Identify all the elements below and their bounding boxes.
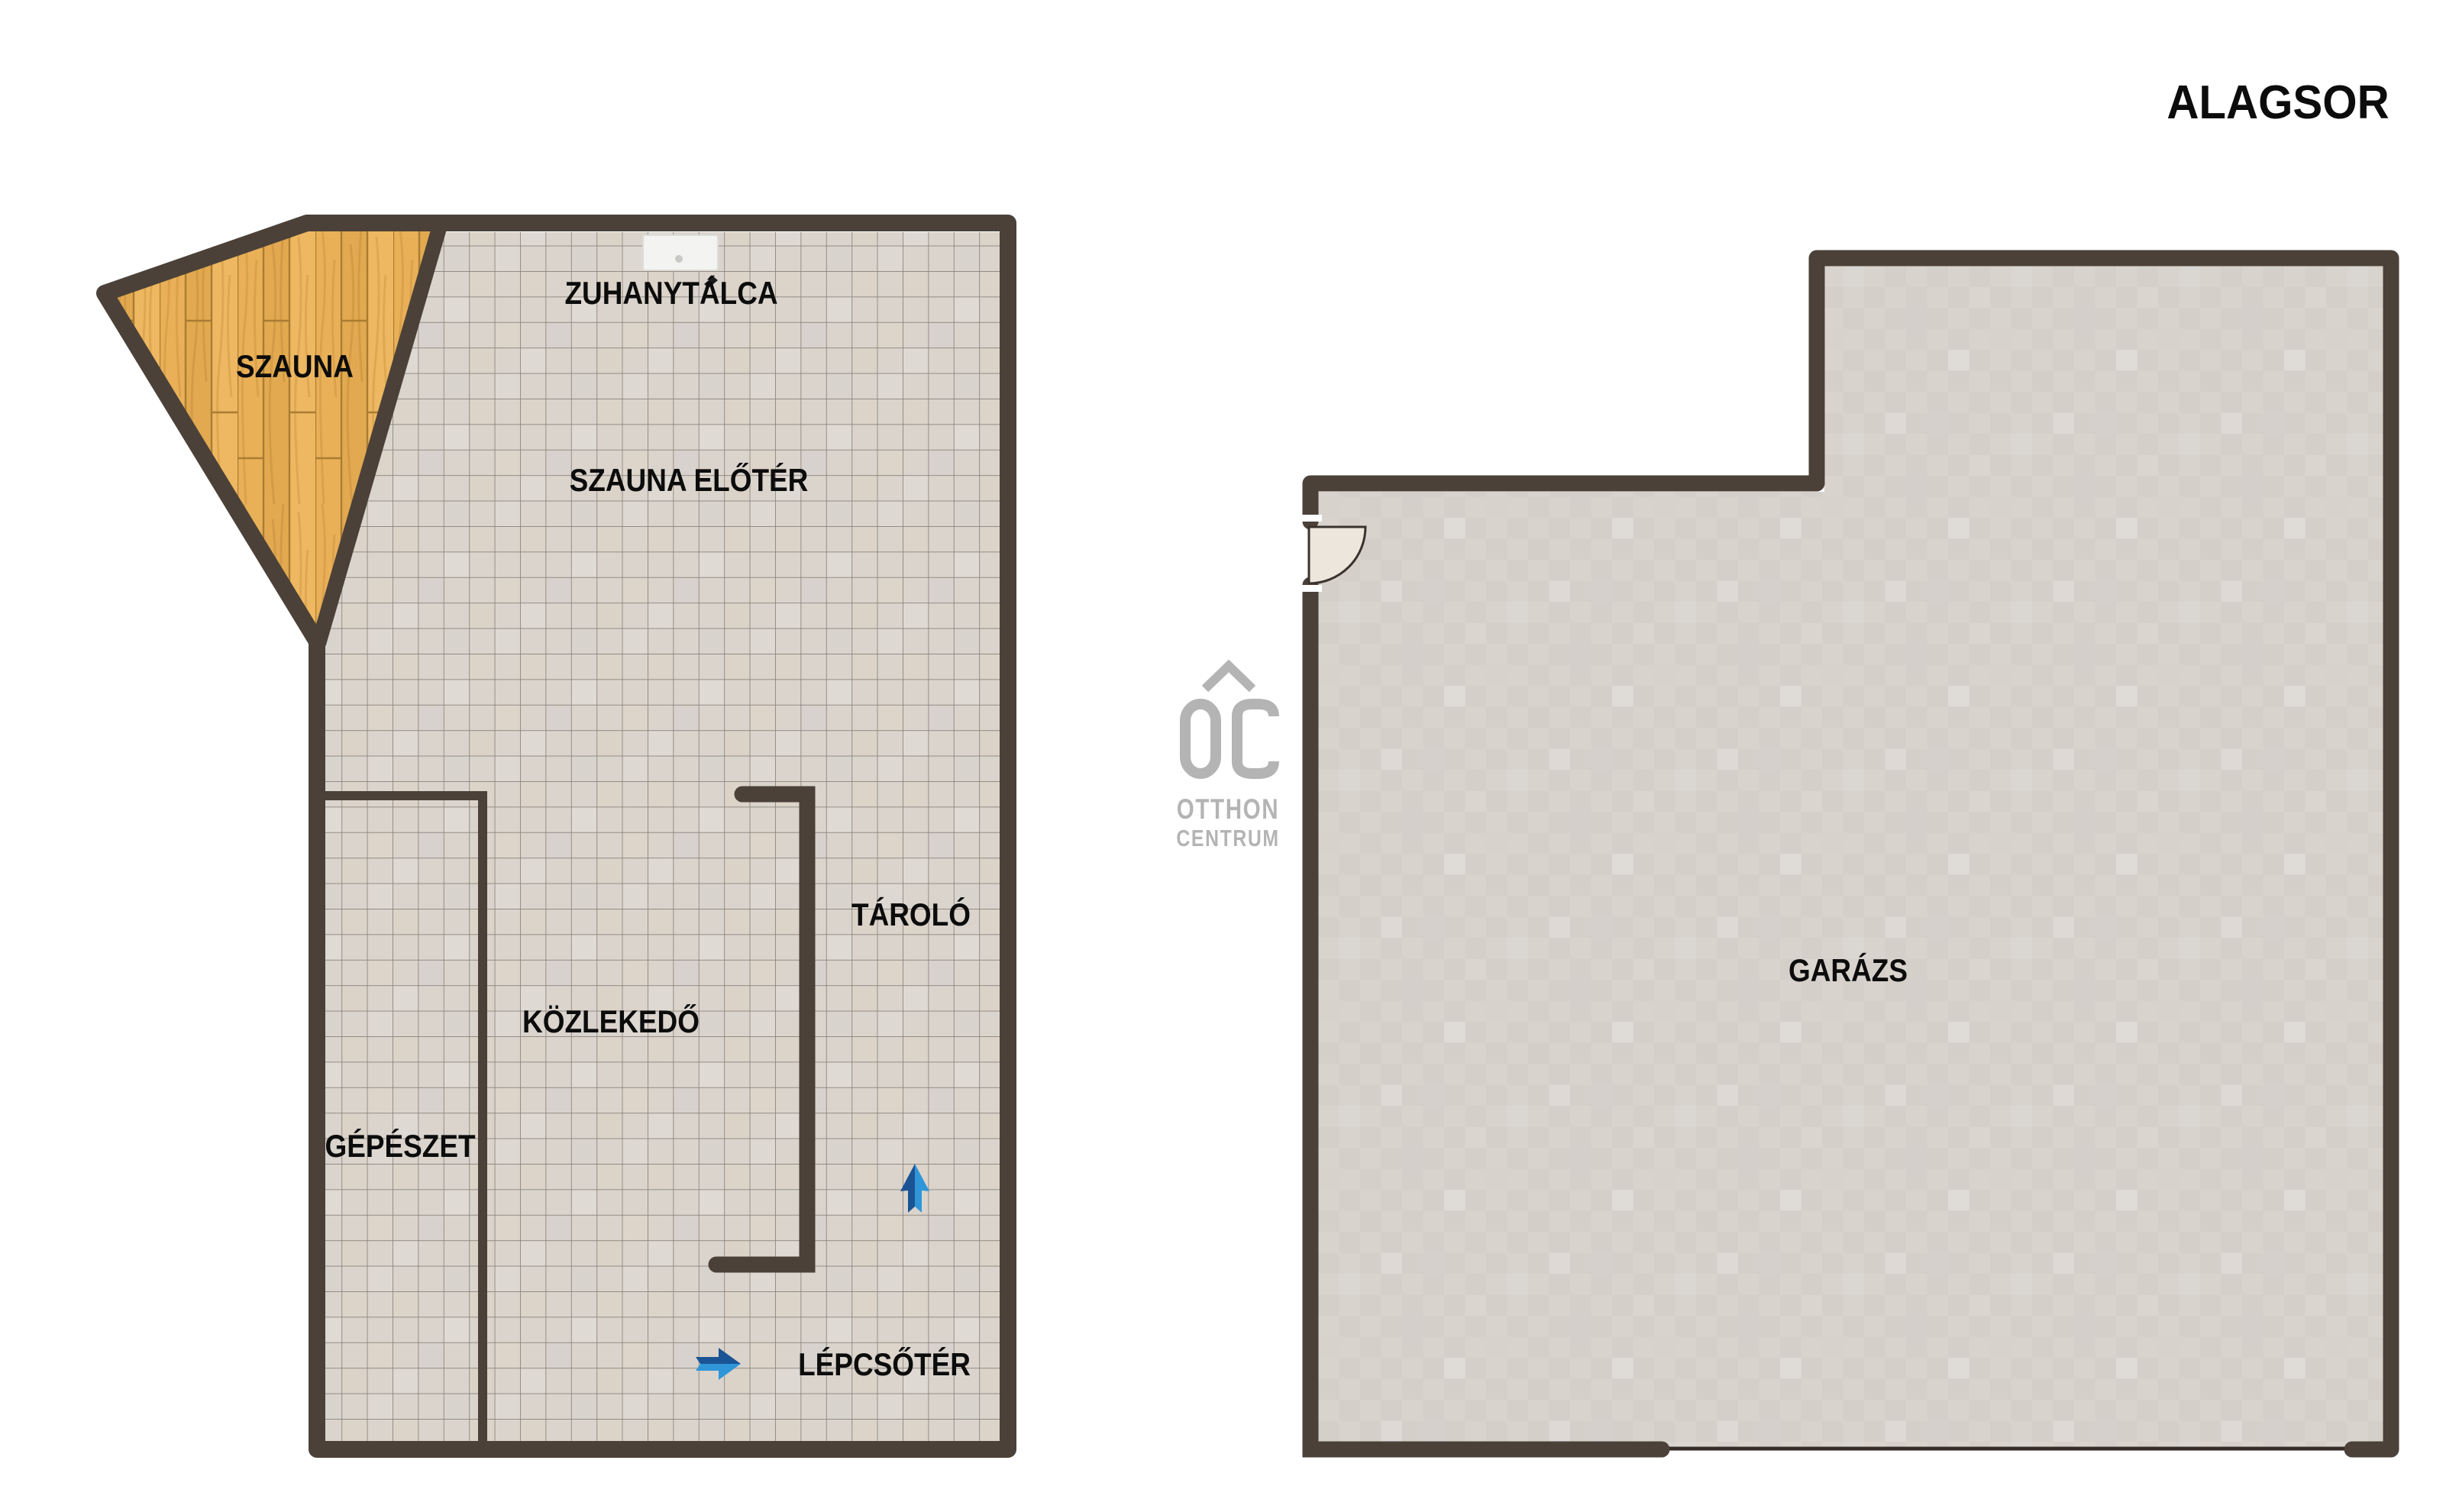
svg-text:KÖZLEKEDŐ: KÖZLEKEDŐ [522, 1004, 700, 1040]
svg-text:SZAUNA: SZAUNA [236, 349, 354, 385]
svg-text:ZUHANYTÁLCA: ZUHANYTÁLCA [564, 276, 777, 312]
svg-text:SZAUNA ELŐTÉR: SZAUNA ELŐTÉR [570, 463, 809, 499]
svg-text:LÉPCSŐTÉR: LÉPCSŐTÉR [798, 1347, 971, 1383]
svg-text:GÉPÉSZET: GÉPÉSZET [325, 1129, 475, 1165]
svg-text:TÁROLÓ: TÁROLÓ [851, 897, 971, 933]
svg-text:OTTHON: OTTHON [1177, 794, 1280, 825]
svg-text:CENTRUM: CENTRUM [1176, 825, 1279, 851]
svg-text:ALAGSOR: ALAGSOR [2167, 76, 2389, 128]
svg-text:GARÁZS: GARÁZS [1789, 953, 1908, 989]
